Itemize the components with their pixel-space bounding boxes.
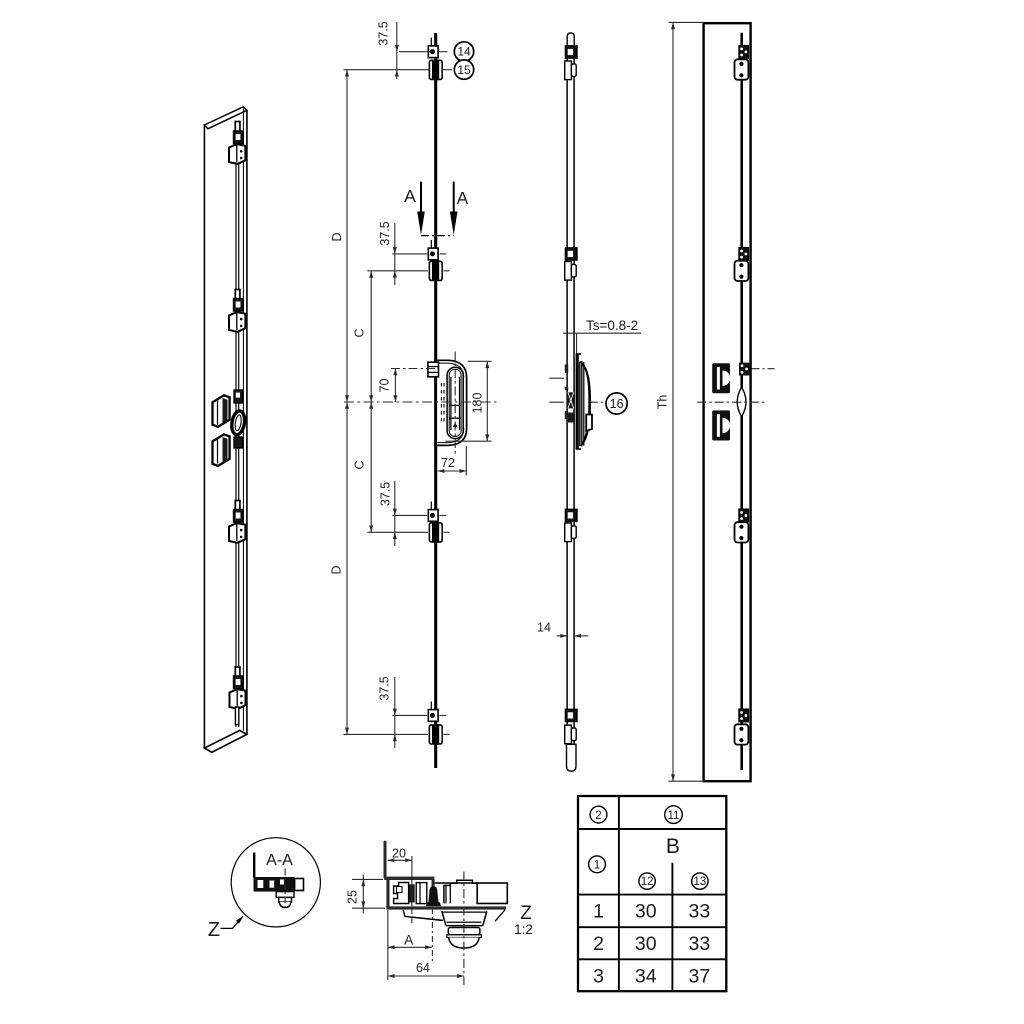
- svg-text:Ts=0.8-2: Ts=0.8-2: [586, 318, 638, 333]
- svg-text:37.5: 37.5: [378, 676, 392, 700]
- svg-text:37: 37: [689, 965, 711, 987]
- svg-text:180: 180: [471, 393, 485, 414]
- svg-text:70: 70: [378, 379, 392, 393]
- svg-text:15: 15: [457, 63, 471, 77]
- svg-text:25: 25: [346, 890, 360, 904]
- svg-text:A-A: A-A: [266, 852, 293, 869]
- svg-text:D: D: [329, 565, 343, 574]
- svg-text:1: 1: [593, 901, 604, 923]
- svg-text:Z: Z: [520, 903, 532, 924]
- svg-text:13: 13: [694, 876, 707, 888]
- svg-text:33: 33: [689, 933, 711, 955]
- svg-text:A: A: [404, 933, 413, 948]
- svg-text:C: C: [353, 328, 367, 337]
- svg-text:Th: Th: [656, 395, 670, 410]
- svg-text:37.5: 37.5: [379, 482, 393, 506]
- svg-text:64: 64: [416, 961, 430, 975]
- svg-text:37.5: 37.5: [377, 21, 391, 45]
- svg-text:30: 30: [635, 933, 657, 955]
- svg-text:1:2: 1:2: [514, 922, 533, 937]
- svg-text:A: A: [404, 186, 416, 206]
- svg-text:12: 12: [641, 876, 654, 888]
- svg-text:14: 14: [457, 45, 471, 59]
- svg-text:1: 1: [594, 860, 600, 872]
- svg-text:3: 3: [593, 965, 604, 987]
- svg-text:16: 16: [610, 397, 624, 411]
- svg-text:A: A: [457, 188, 469, 208]
- svg-text:2: 2: [593, 933, 604, 955]
- svg-text:11: 11: [668, 810, 680, 822]
- svg-text:D: D: [330, 232, 344, 241]
- svg-text:14: 14: [537, 621, 551, 635]
- svg-text:33: 33: [689, 901, 711, 923]
- svg-text:37.5: 37.5: [378, 221, 392, 245]
- svg-text:B: B: [666, 835, 680, 858]
- svg-text:C: C: [353, 460, 367, 469]
- svg-text:72: 72: [441, 456, 455, 470]
- svg-text:30: 30: [635, 901, 657, 923]
- svg-text:2: 2: [595, 810, 601, 822]
- svg-text:34: 34: [635, 965, 657, 987]
- svg-text:Z: Z: [208, 919, 220, 941]
